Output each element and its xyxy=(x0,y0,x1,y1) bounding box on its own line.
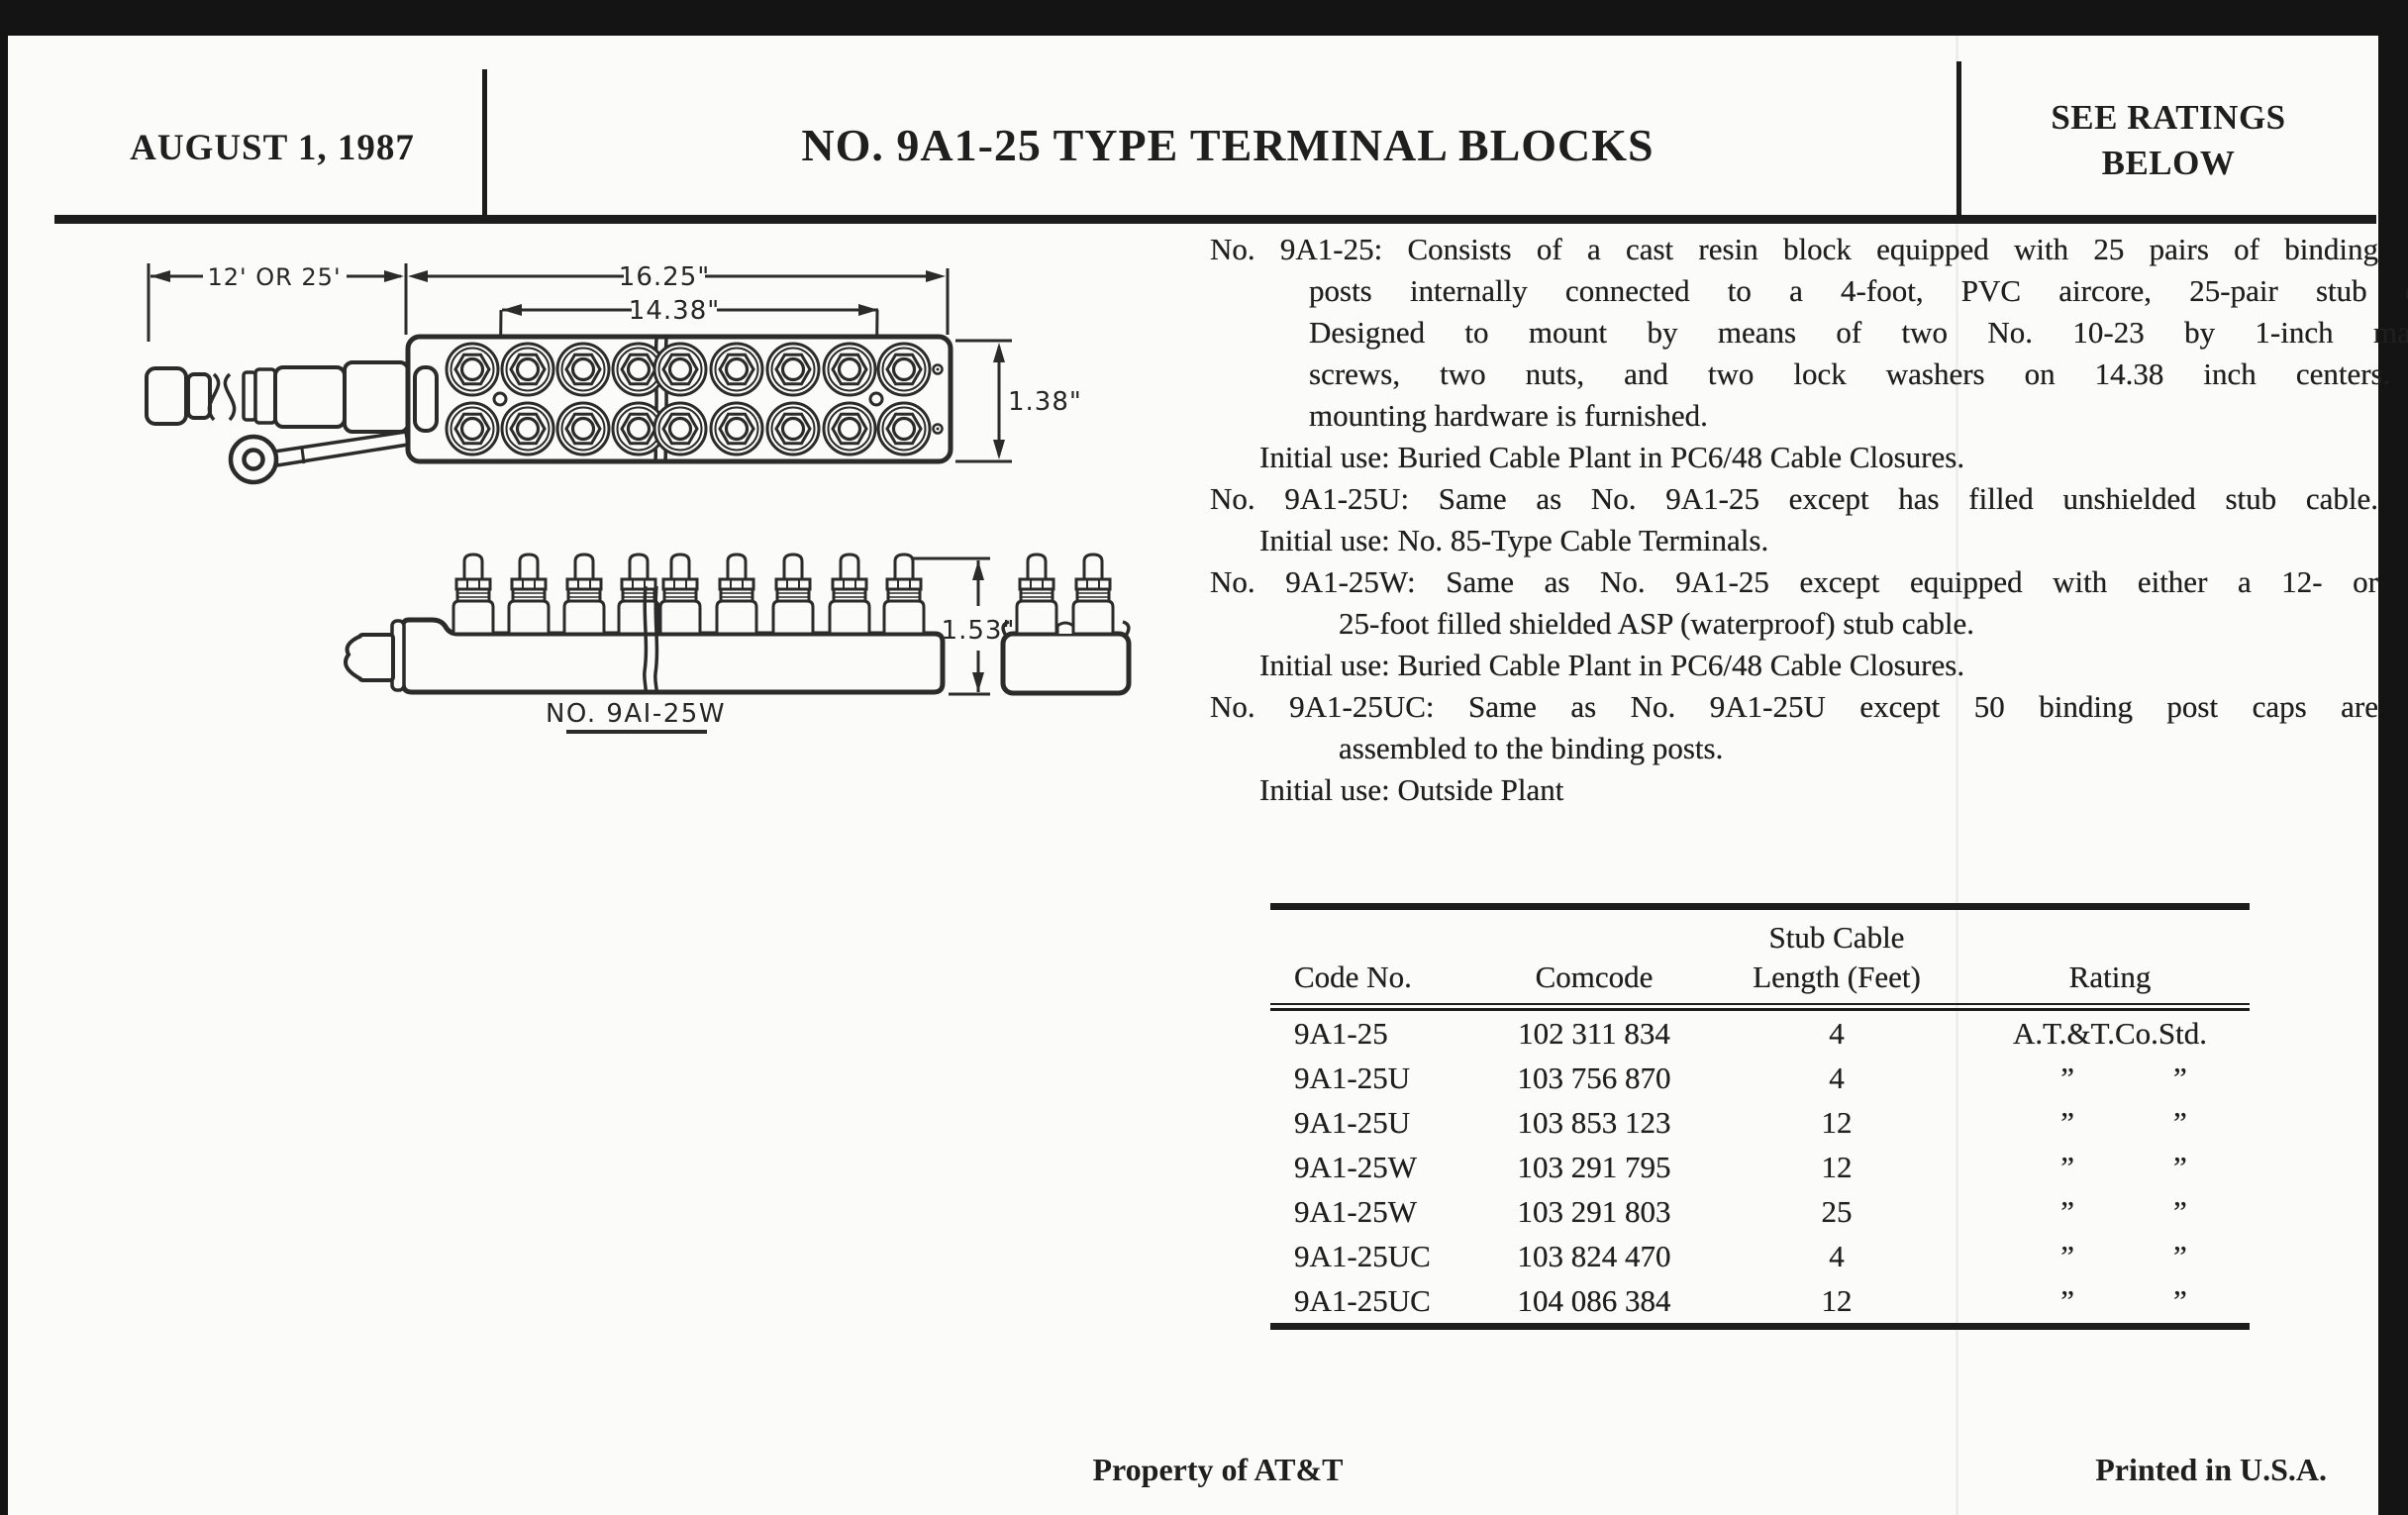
table-row: 9A1-25W103 291 80325”” xyxy=(1270,1189,2250,1234)
table-cell-code: 9A1-25UC xyxy=(1270,1239,1485,1274)
issue-date: AUGUST 1, 1987 xyxy=(89,127,455,169)
description-line: No. 9A1-25W: Same as No. 9A1-25 except e… xyxy=(1210,561,2378,603)
description-line: Initial use: Buried Cable Plant in PC6/4… xyxy=(1210,645,2408,686)
table-cell-code: 9A1-25UC xyxy=(1270,1283,1485,1319)
binding-posts-side xyxy=(453,555,924,634)
table-cell-comcode: 103 853 123 xyxy=(1485,1105,1703,1141)
spec-table: Code No. Comcode Stub Cable Length (Feet… xyxy=(1270,903,2250,1330)
col-header-code: Code No. xyxy=(1270,958,1485,997)
terminal-block-end-piece xyxy=(1003,555,1129,693)
table-cell-len: 12 xyxy=(1703,1105,1970,1141)
ground-strap-drawing xyxy=(231,432,408,482)
table-cell-len: 25 xyxy=(1703,1194,1970,1230)
stub-cable-drawing xyxy=(147,362,408,432)
table-cell-code: 9A1-25W xyxy=(1270,1194,1485,1230)
description-line: 25-foot filled shielded ASP (waterproof)… xyxy=(1210,603,2408,645)
mounting-centers-dimension-label: 14.38" xyxy=(629,296,720,326)
ditto-mark: ” xyxy=(2173,1194,2187,1230)
table-cell-rating: A.T.&T.Co.Std. xyxy=(1970,1016,2250,1052)
description-line: Initial use: Outside Plant xyxy=(1210,769,2408,811)
table-cell-len: 4 xyxy=(1703,1016,1970,1052)
table-cell-code: 9A1-25W xyxy=(1270,1150,1485,1185)
mounting-hole-right xyxy=(870,393,882,405)
block-height-dimension-label: 1.38" xyxy=(1008,387,1082,417)
ditto-mark: ” xyxy=(2060,1060,2074,1096)
description-line: screws, two nuts, and two lock washers o… xyxy=(1210,353,2408,395)
table-cell-code: 9A1-25U xyxy=(1270,1060,1485,1096)
description-line: posts internally connected to a 4-foot, … xyxy=(1210,270,2408,312)
table-cell-comcode: 104 086 384 xyxy=(1485,1283,1703,1319)
table-cell-rating: ”” xyxy=(1970,1239,2250,1274)
overall-width-dimension-label: 16.25" xyxy=(619,262,710,292)
table-row: 9A1-25U103 853 12312”” xyxy=(1270,1100,2250,1145)
col-header-rating: Rating xyxy=(1970,958,2250,997)
table-cell-comcode: 103 756 870 xyxy=(1485,1060,1703,1096)
header-rule xyxy=(54,215,2376,224)
description-line: assembled to the binding posts. xyxy=(1210,728,2408,769)
description-line: Initial use: No. 85-Type Cable Terminals… xyxy=(1210,520,2408,561)
side-view-diagram: 1.53" NO. 9AI-25W xyxy=(327,545,1168,743)
ditto-mark: ” xyxy=(2060,1105,2074,1141)
description-line: Designed to mount by means of two No. 10… xyxy=(1210,312,2408,353)
description-line: mounting hardware is furnished. xyxy=(1210,395,2408,437)
description-line: No. 9A1-25U: Same as No. 9A1-25 except h… xyxy=(1210,478,2378,520)
table-cell-rating: ”” xyxy=(1970,1283,2250,1319)
table-cell-rating: ”” xyxy=(1970,1105,2250,1141)
ratings-note-line1: SEE RATINGS xyxy=(1972,95,2364,141)
ditto-mark: ” xyxy=(2173,1105,2187,1141)
ditto-mark: ” xyxy=(2173,1283,2187,1319)
ratings-note: SEE RATINGS BELOW xyxy=(1972,95,2364,186)
cable-length-dimension-label: 12' OR 25' xyxy=(207,263,341,291)
ditto-mark: ” xyxy=(2173,1239,2187,1274)
table-cell-code: 9A1-25 xyxy=(1270,1016,1485,1052)
description-line: No. 9A1-25: Consists of a cast resin blo… xyxy=(1210,229,2378,270)
table-row: 9A1-25W103 291 79512”” xyxy=(1270,1145,2250,1189)
terminal-block-top-view xyxy=(408,337,951,461)
terminal-block-side-view xyxy=(346,555,943,693)
ratings-note-line2: BELOW xyxy=(1972,141,2364,186)
table-row: 9A1-25U103 756 8704”” xyxy=(1270,1056,2250,1100)
ditto-mark: ” xyxy=(2060,1194,2074,1230)
ditto-mark: ” xyxy=(2060,1239,2074,1274)
table-cell-rating: ”” xyxy=(1970,1194,2250,1230)
table-cell-code: 9A1-25U xyxy=(1270,1105,1485,1141)
table-cell-len: 12 xyxy=(1703,1283,1970,1319)
mounting-hole-left xyxy=(494,393,506,405)
caption-underline xyxy=(566,730,707,734)
scan-background: AUGUST 1, 1987 NO. 9A1-25 TYPE TERMINAL … xyxy=(0,0,2408,1515)
table-cell-rating: ”” xyxy=(1970,1150,2250,1185)
table-cell-len: 4 xyxy=(1703,1060,1970,1096)
table-body: 9A1-25102 311 8344A.T.&T.Co.Std.9A1-25U1… xyxy=(1270,1011,2250,1323)
table-cell-len: 12 xyxy=(1703,1150,1970,1185)
top-view-diagram: 12' OR 25' 16.25" 14.38" xyxy=(119,246,1089,495)
table-header: Code No. Comcode Stub Cable Length (Feet… xyxy=(1270,910,2250,1003)
ditto-mark: ” xyxy=(2060,1283,2074,1319)
description-block: No. 9A1-25: Consists of a cast resin blo… xyxy=(1210,229,2378,811)
table-cell-rating: ”” xyxy=(1970,1060,2250,1096)
table-row: 9A1-25102 311 8344A.T.&T.Co.Std. xyxy=(1270,1011,2250,1056)
description-line: No. 9A1-25UC: Same as No. 9A1-25U except… xyxy=(1210,686,2378,728)
ditto-mark: ” xyxy=(2173,1150,2187,1185)
table-header-rule xyxy=(1270,1003,2250,1011)
ditto-mark: ” xyxy=(2060,1150,2074,1185)
ditto-mark: ” xyxy=(2173,1060,2187,1096)
table-cell-len: 4 xyxy=(1703,1239,1970,1274)
table-cell-comcode: 103 291 803 xyxy=(1485,1194,1703,1230)
col-header-comcode: Comcode xyxy=(1485,958,1703,997)
side-view-caption: NO. 9AI-25W xyxy=(546,699,726,729)
description-line: Initial use: Buried Cable Plant in PC6/4… xyxy=(1210,437,2408,478)
table-cell-comcode: 103 824 470 xyxy=(1485,1239,1703,1274)
header-divider-right xyxy=(1956,61,1961,218)
table-cell-comcode: 103 291 795 xyxy=(1485,1150,1703,1185)
table-row: 9A1-25UC104 086 38412”” xyxy=(1270,1278,2250,1323)
table-row: 9A1-25UC103 824 4704”” xyxy=(1270,1234,2250,1278)
page-title: NO. 9A1-25 TYPE TERMINAL BLOCKS xyxy=(554,119,1901,171)
footer-property-label: Property of AT&T xyxy=(1010,1452,1426,1488)
table-cell-comcode: 102 311 834 xyxy=(1485,1016,1703,1052)
post-height-dimension-label: 1.53" xyxy=(942,616,1016,646)
header-divider-left xyxy=(482,69,487,218)
footer-printed-label: Printed in U.S.A. xyxy=(2020,1452,2327,1488)
col-header-length: Stub Cable Length (Feet) xyxy=(1703,918,1970,997)
